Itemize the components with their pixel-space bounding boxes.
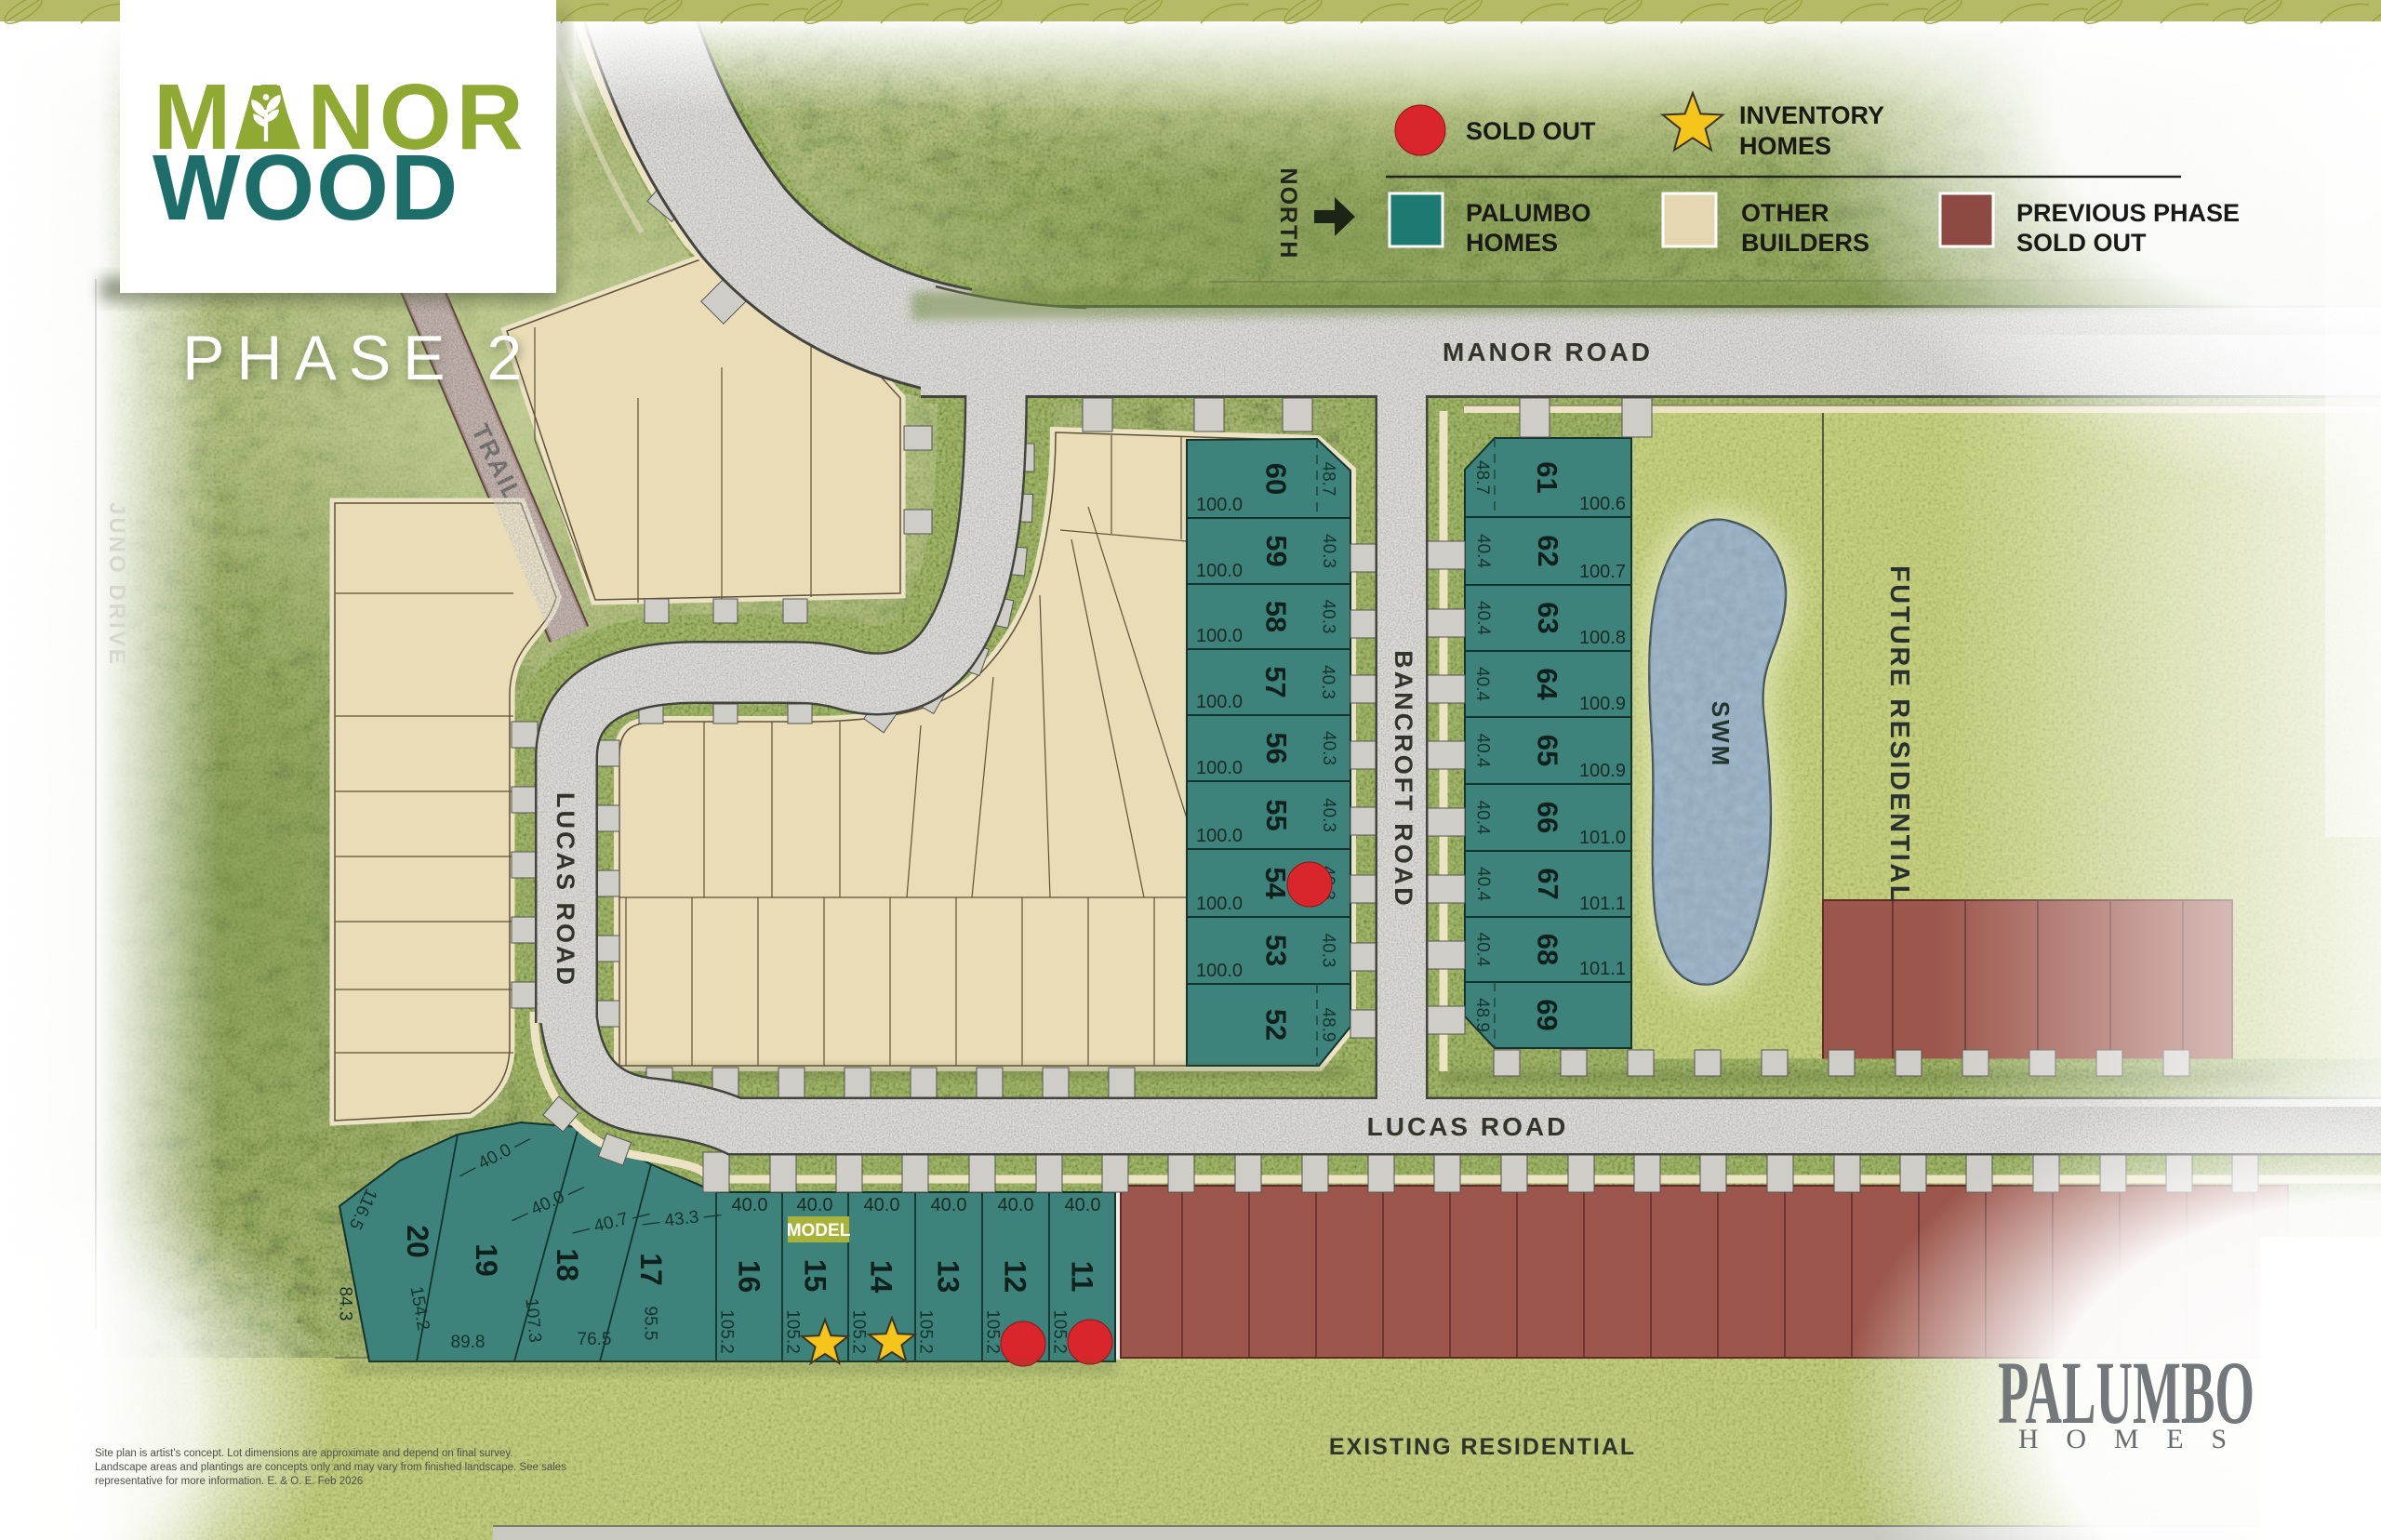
svg-text:SOLD OUT: SOLD OUT: [2016, 229, 2147, 257]
svg-text:PHASE 2: PHASE 2: [182, 323, 534, 393]
svg-text:BANCROFT ROAD: BANCROFT ROAD: [1390, 650, 1417, 908]
svg-text:JUNO DRIVE: JUNO DRIVE: [104, 502, 129, 667]
svg-text:BUILDERS: BUILDERS: [1741, 229, 1869, 257]
svg-text:PALUMBO: PALUMBO: [1466, 199, 1591, 227]
svg-text:NORTH: NORTH: [1275, 168, 1301, 260]
svg-text:H O M E S: H O M E S: [2018, 1424, 2227, 1454]
svg-text:LUCAS ROAD: LUCAS ROAD: [552, 792, 579, 988]
svg-text:MANOR ROAD: MANOR ROAD: [1443, 338, 1653, 366]
svg-text:SOLD OUT: SOLD OUT: [1466, 117, 1596, 145]
svg-text:PREVIOUS PHASE: PREVIOUS PHASE: [2016, 199, 2240, 227]
svg-text:HOMES: HOMES: [1466, 229, 1558, 257]
svg-text:LUCAS ROAD: LUCAS ROAD: [1367, 1112, 1569, 1141]
svg-text:Site plan is artist's concept.: Site plan is artist's concept. Lot dimen…: [95, 1448, 512, 1459]
svg-text:EXISTING RESIDENTIAL: EXISTING RESIDENTIAL: [1329, 1434, 1636, 1460]
svg-text:OTHER: OTHER: [1741, 199, 1829, 227]
svg-text:HOMES: HOMES: [1739, 132, 1831, 160]
svg-text:INVENTORY: INVENTORY: [1739, 101, 1884, 129]
svg-text:WOOD: WOOD: [153, 136, 459, 240]
svg-text:Landscape areas and plantings: Landscape areas and plantings are concep…: [95, 1462, 566, 1473]
svg-text:representative for more inform: representative for more information. E. …: [95, 1476, 363, 1487]
